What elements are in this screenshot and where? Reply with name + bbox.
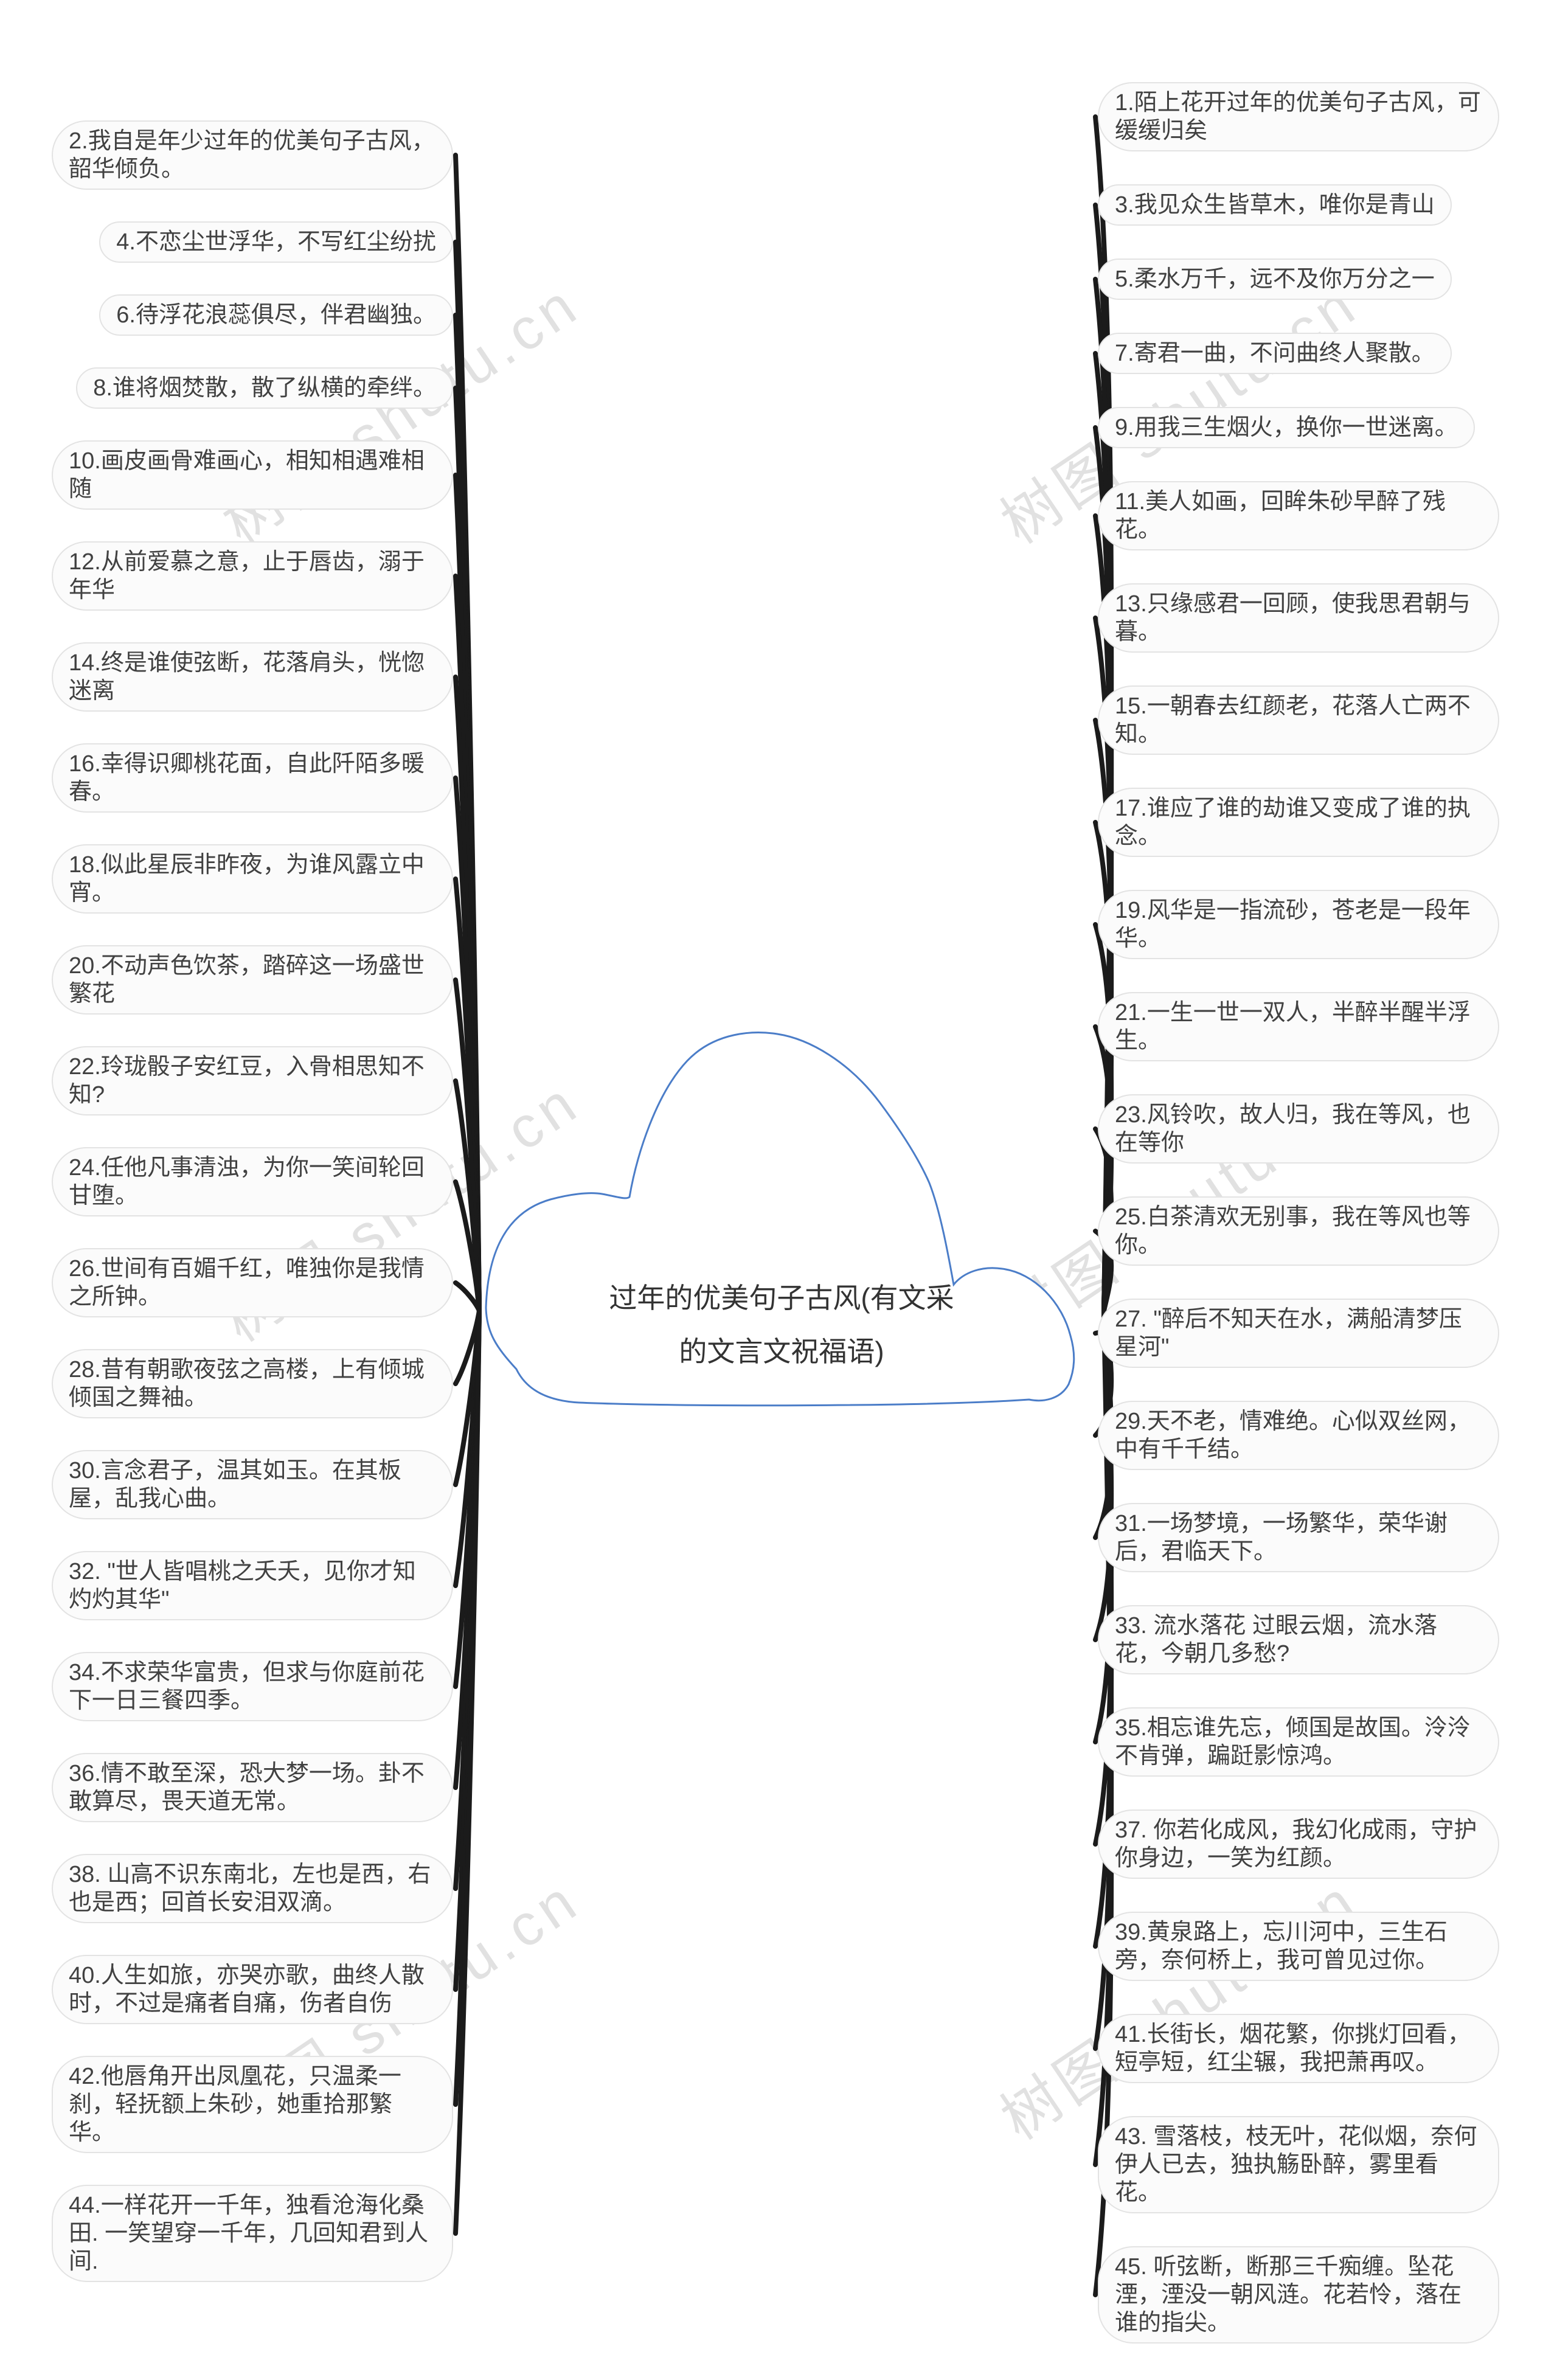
quote-node-left[interactable]: 36.情不敢至深，恐大梦一场。卦不敢算尽，畏天道无常。 [52, 1753, 453, 1822]
quote-node-right[interactable]: 27. "醉后不知天在水，满船清梦压星河" [1098, 1299, 1499, 1368]
quote-node-left[interactable]: 10.画皮画骨难画心，相知相遇难相随 [52, 440, 453, 510]
quote-node-right[interactable]: 33. 流水落花 过眼云烟，流水落花，今朝几多愁? [1098, 1605, 1499, 1674]
quote-node-right[interactable]: 35.相忘谁先忘，倾国是故国。泠泠不肯弹，蹁跹影惊鸿。 [1098, 1707, 1499, 1777]
quote-node-right[interactable]: 5.柔水万千，远不及你万分之一 [1098, 258, 1452, 300]
quote-node-left[interactable]: 4.不恋尘世浮华，不写红尘纷扰 [99, 221, 453, 263]
central-topic-label[interactable]: 过年的优美句子古风(有文采的文言文祝福语) [608, 1271, 955, 1378]
quote-node-right[interactable]: 39.黄泉路上，忘川河中，三生石旁，奈何桥上，我可曾见过你。 [1098, 1912, 1499, 1981]
quote-node-right[interactable]: 29.天不老，情难绝。心似双丝网，中有千千结。 [1098, 1401, 1499, 1470]
quote-node-left[interactable]: 14.终是谁使弦断，花落肩头，恍惚迷离 [52, 642, 453, 712]
quote-node-left[interactable]: 24.任他凡事清浊，为你一笑间轮回甘堕。 [52, 1147, 453, 1216]
quote-node-left[interactable]: 8.谁将烟焚散，散了纵横的牵绊。 [76, 367, 453, 409]
quote-node-left[interactable]: 12.从前爱慕之意，止于唇齿，溺于年华 [52, 541, 453, 611]
quote-node-right[interactable]: 19.风华是一指流砂，苍老是一段年华。 [1098, 890, 1499, 959]
quote-node-right[interactable]: 41.长街长，烟花繁，你挑灯回看，短亭短，红尘辗，我把萧再叹。 [1098, 2014, 1499, 2083]
quote-node-left[interactable]: 42.他唇角开出凤凰花，只温柔一刹，轻抚额上朱砂，她重拾那繁华。 [52, 2056, 453, 2153]
quote-node-right[interactable]: 31.一场梦境，一场繁华，荣华谢后，君临天下。 [1098, 1503, 1499, 1572]
quote-node-right[interactable]: 7.寄君一曲，不问曲终人聚散。 [1098, 333, 1452, 374]
quote-node-right[interactable]: 11.美人如画，回眸朱砂早醉了残花。 [1098, 481, 1499, 550]
quote-node-right[interactable]: 1.陌上花开过年的优美句子古风，可缓缓归矣 [1098, 82, 1499, 151]
quote-node-right[interactable]: 37. 你若化成风，我幻化成雨，守护你身边，一笑为红颜。 [1098, 1809, 1499, 1879]
quote-node-left[interactable]: 2.我自是年少过年的优美句子古风，韶华倾负。 [52, 120, 453, 190]
quote-node-right[interactable]: 43. 雪落枝，枝无叶，花似烟，奈何伊人已去，独执觞卧醉，雾里看花。 [1098, 2116, 1499, 2213]
quote-node-left[interactable]: 38. 山高不识东南北，左也是西，右也是西；回首长安泪双滴。 [52, 1854, 453, 1923]
right-branch-column: 1.陌上花开过年的优美句子古风，可缓缓归矣3.我见众生皆草木，唯你是青山5.柔水… [1098, 82, 1499, 2344]
quote-node-right[interactable]: 15.一朝春去红颜老，花落人亡两不知。 [1098, 685, 1499, 755]
quote-node-left[interactable]: 32. "世人皆唱桃之夭夭，见你才知灼灼其华" [52, 1551, 453, 1620]
quote-node-left[interactable]: 44.一样花开一千年，独看沧海化桑田. 一笑望穿一千年，几回知君到人间. [52, 2185, 453, 2282]
quote-node-left[interactable]: 28.昔有朝歌夜弦之高楼，上有倾城倾国之舞袖。 [52, 1349, 453, 1418]
quote-node-right[interactable]: 17.谁应了谁的劫谁又变成了谁的执念。 [1098, 788, 1499, 857]
quote-node-left[interactable]: 30.言念君子，温其如玉。在其板屋，乱我心曲。 [52, 1450, 453, 1519]
quote-node-right[interactable]: 25.白茶清欢无别事，我在等风也等你。 [1098, 1196, 1499, 1266]
quote-node-left[interactable]: 16.幸得识卿桃花面，自此阡陌多暖春。 [52, 743, 453, 813]
quote-node-right[interactable]: 9.用我三生烟火，换你一世迷离。 [1098, 407, 1475, 448]
quote-node-left[interactable]: 34.不求荣华富贵，但求与你庭前花下一日三餐四季。 [52, 1652, 453, 1721]
quote-node-left[interactable]: 18.似此星辰非昨夜，为谁风露立中宵。 [52, 844, 453, 914]
left-branch-column: 2.我自是年少过年的优美句子古风，韶华倾负。4.不恋尘世浮华，不写红尘纷扰6.待… [52, 120, 453, 2282]
quote-node-right[interactable]: 23.风铃吹，故人归，我在等风，也在等你 [1098, 1094, 1499, 1164]
quote-node-right[interactable]: 13.只缘感君一回顾，使我思君朝与暮。 [1098, 583, 1499, 653]
quote-node-right[interactable]: 3.我见众生皆草木，唯你是青山 [1098, 184, 1452, 226]
quote-node-right[interactable]: 21.一生一世一双人，半醉半醒半浮生。 [1098, 992, 1499, 1061]
quote-node-left[interactable]: 26.世间有百媚千红，唯独你是我情之所钟。 [52, 1248, 453, 1317]
quote-node-right[interactable]: 45. 听弦断，断那三千痴缠。坠花湮，湮没一朝风涟。花若怜，落在谁的指尖。 [1098, 2246, 1499, 2344]
quote-node-left[interactable]: 20.不动声色饮茶，踏碎这一场盛世繁花 [52, 945, 453, 1015]
mindmap-canvas: 树图 shutu.cn树图 shutu.cn树图 shutu.cn树图 shut… [0, 0, 1557, 2380]
quote-node-left[interactable]: 6.待浮花浪蕊俱尽，伴君幽独。 [99, 294, 453, 336]
quote-node-left[interactable]: 40.人生如旅，亦哭亦歌，曲终人散时，不过是痛者自痛，伤者自伤 [52, 1955, 453, 2024]
quote-node-left[interactable]: 22.玲珑骰子安红豆，入骨相思知不知? [52, 1046, 453, 1115]
